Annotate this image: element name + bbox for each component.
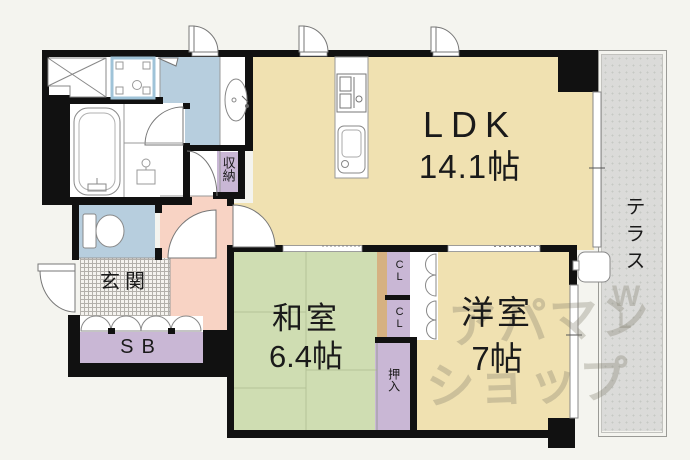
- exterior-door-swing-3: [434, 27, 459, 52]
- toilet-door-swing: [168, 210, 216, 258]
- pipe-shaft: [48, 58, 106, 97]
- washer-door-leaf: [158, 58, 178, 66]
- washitsu-label: 和室: [232, 303, 380, 336]
- washroom-door-swing: [187, 151, 217, 196]
- terrace-label: テラス: [622, 196, 643, 277]
- bathroom-door-swing: [145, 107, 183, 145]
- toilet-bowl: [83, 214, 124, 248]
- kitchen-sink: [338, 126, 365, 173]
- genkan-label: 玄関: [83, 272, 167, 293]
- shoebox-doors: [80, 316, 203, 334]
- exterior-door-swing-2: [302, 26, 328, 52]
- ldk-label: LDK: [385, 106, 555, 144]
- washitsu-size: 6.4帖: [232, 341, 380, 374]
- youshitsu-size: 7帖: [418, 342, 576, 377]
- washer-pan: [112, 58, 154, 98]
- watermark-logo-mark2: L: [618, 308, 633, 334]
- hallway-ldk-door-swing: [233, 205, 275, 247]
- floorplan: アパマン ショップ W L LDK 14.1帖 和室 6.4帖 洋室 7帖 玄関…: [0, 0, 690, 460]
- youshitsu-label: 洋室: [418, 296, 576, 331]
- cl-label-1: CL: [393, 259, 405, 283]
- exterior-door-swing-1: [192, 26, 218, 52]
- ac-unit: [573, 252, 610, 282]
- oshiire-label: 押入: [387, 368, 400, 392]
- ldk-size: 14.1帖: [385, 150, 555, 185]
- entrance-door-swing: [40, 270, 75, 312]
- shuunou-label: 収納: [221, 156, 235, 182]
- cl-label-2: CL: [393, 306, 405, 330]
- bathtub: [74, 108, 120, 195]
- shoebox-label: SB: [80, 337, 203, 358]
